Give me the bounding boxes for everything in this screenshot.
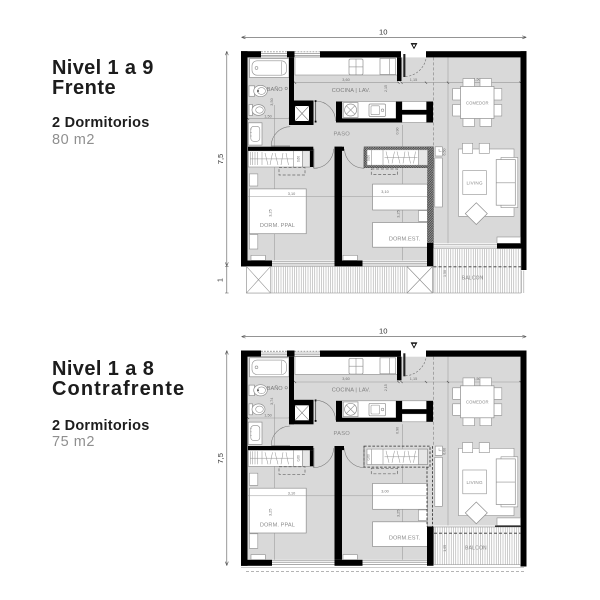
svg-text:COMEDOR: COMEDOR [466,400,489,405]
svg-text:1,50: 1,50 [264,114,271,118]
svg-text:DORM. PPAL: DORM. PPAL [260,223,295,229]
svg-text:BAÑO: BAÑO [267,86,284,93]
svg-text:7,5: 7,5 [216,154,225,165]
svg-text:3,25: 3,25 [397,210,401,217]
svg-text:1,05: 1,05 [443,545,447,552]
svg-text:3,74: 3,74 [270,398,274,405]
svg-text:PASO: PASO [334,431,351,437]
svg-text:1,50: 1,50 [443,270,447,277]
svg-text:DORM.EST.: DORM.EST. [389,536,421,542]
svg-text:1: 1 [218,278,225,282]
svg-text:0,60: 0,60 [296,455,300,461]
svg-text:0,60: 0,60 [367,454,371,460]
svg-text:DORM. PPAL: DORM. PPAL [260,522,295,528]
svg-text:COCINA | LAV.: COCINA | LAV. [332,88,371,94]
svg-text:1,15: 1,15 [410,78,417,82]
svg-text:10: 10 [379,27,387,36]
svg-text:10: 10 [379,327,387,336]
svg-text:3,60: 3,60 [342,377,349,381]
svg-text:3,25: 3,25 [269,209,273,216]
svg-text:2,15: 2,15 [384,384,388,391]
svg-text:0,90: 0,90 [396,427,400,434]
svg-text:BAÑO: BAÑO [267,385,284,392]
svg-text:BALCON: BALCON [465,545,487,551]
svg-text:7,5: 7,5 [216,453,225,464]
svg-text:3,25: 3,25 [397,510,401,517]
svg-text:LIVING: LIVING [466,480,482,485]
svg-text:DORM.EST.: DORM.EST. [389,236,421,242]
svg-text:COMEDOR: COMEDOR [466,100,489,105]
svg-text:1,15: 1,15 [410,377,417,381]
svg-text:6,50: 6,50 [442,149,446,156]
svg-text:3,25: 3,25 [269,509,273,516]
svg-text:PASO: PASO [334,132,351,138]
svg-text:3,10: 3,10 [288,192,295,196]
svg-text:6,00: 6,00 [442,448,446,455]
svg-text:0,60: 0,60 [296,156,300,162]
svg-text:1,50: 1,50 [264,414,271,418]
svg-text:3,60: 3,60 [342,78,349,82]
svg-text:3,10: 3,10 [288,491,295,495]
svg-text:3,00: 3,00 [381,490,388,494]
svg-text:BALCON: BALCON [462,275,484,281]
svg-text:0,90: 0,90 [396,128,400,135]
svg-text:0,60: 0,60 [367,155,371,161]
svg-text:COCINA | LAV.: COCINA | LAV. [332,387,371,393]
svg-text:LIVING: LIVING [466,181,482,186]
svg-text:2,15: 2,15 [384,85,388,92]
svg-text:3,50: 3,50 [270,98,274,105]
svg-text:3,10: 3,10 [381,190,388,194]
